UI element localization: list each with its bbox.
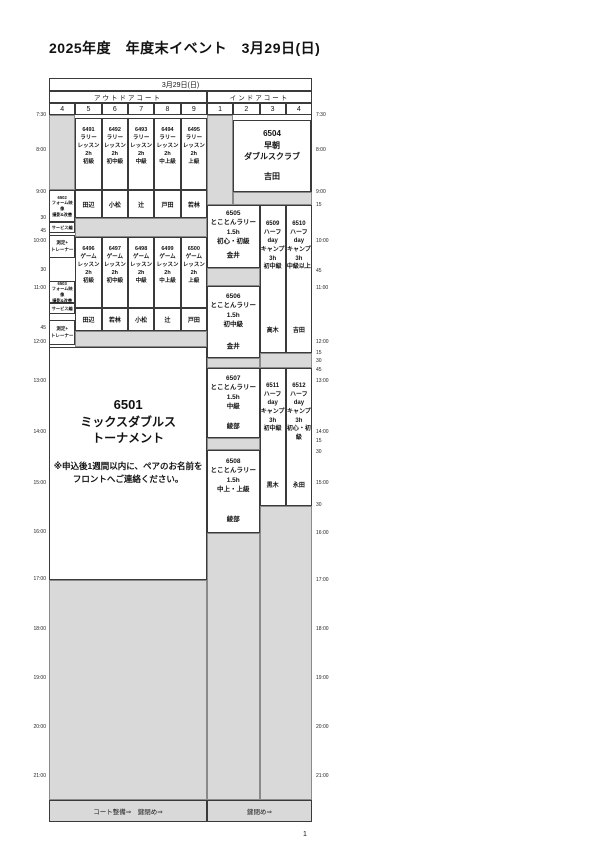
- time-label-left: 19:00: [24, 675, 46, 681]
- event-text: 6505とことんラリー1.5h初心・初級: [211, 209, 257, 247]
- event-text-line: サービス編: [52, 225, 73, 231]
- closed-area: [260, 353, 313, 368]
- instructor-cell-6493: 辻: [128, 190, 154, 218]
- event-text-line: ハーフ: [261, 391, 285, 400]
- event-text-line: 2h: [191, 270, 197, 278]
- event-text-line: 6510: [287, 220, 311, 229]
- closed-area: [75, 331, 207, 347]
- event-text-line: キャンプ: [261, 408, 285, 417]
- note-line: ※申込後1週間以内に、ペアのお名前を: [54, 460, 203, 473]
- closed-area: [233, 192, 312, 205]
- time-label-right: 15: [316, 350, 322, 356]
- closed-area: [260, 506, 313, 800]
- event-text-line: 6509: [261, 220, 285, 229]
- event-block-6509: 6509ハーフdayキャンプ3h初中級高木: [260, 205, 286, 353]
- time-label-right: 14:00: [316, 429, 329, 435]
- event-block-6493: 6493ラリーレッスン2h中級: [128, 118, 154, 190]
- event-text-line: 6494: [161, 127, 173, 135]
- event-text: 6508とことんラリー1.5h中上・上級: [211, 457, 257, 495]
- instructor-cell-6498: 小松: [128, 308, 154, 331]
- closed-area: [49, 580, 207, 800]
- footer-outdoor: コート整備⇒ 鍵閉め⇒: [49, 800, 207, 822]
- time-label-right: 20:00: [316, 724, 329, 730]
- event-block-6508: 6508とことんラリー1.5h中上・上級綾部: [207, 450, 260, 533]
- time-label-right: 17:00: [316, 577, 329, 583]
- instructor-name: 永田: [293, 482, 305, 491]
- event-text-line: 初中級: [261, 263, 285, 272]
- instructor-name: 黒木: [267, 482, 279, 491]
- time-label-left: 18:00: [24, 626, 46, 632]
- event-text: 6512ハーフdayキャンプ3h初心・初級: [287, 382, 311, 443]
- event-text-line: 初級: [83, 159, 94, 167]
- event-text-line: 中級: [136, 159, 147, 167]
- event-text-line: ハーフ: [287, 229, 311, 238]
- event-text-line: ダブルスクラブ: [244, 151, 300, 163]
- event-block-c4f: 測定+トレーナー: [49, 320, 75, 345]
- event-block-6511: 6511ハーフdayキャンプ3h初中級黒木: [260, 368, 286, 506]
- event-text-line: 3h: [287, 417, 311, 426]
- event-text-line: 2h: [85, 151, 91, 159]
- instructor-name: 金井: [227, 342, 240, 351]
- event-text-line: 6500: [188, 246, 200, 254]
- event-text-line: 6501: [80, 396, 176, 414]
- event-block-6491: 6491ラリーレッスン2h初級: [75, 118, 101, 190]
- closed-area: [207, 115, 233, 205]
- event-text-line: 2h: [138, 270, 144, 278]
- event-text-line: 1.5h: [211, 228, 257, 237]
- event-block-6512: 6512ハーフdayキャンプ3h初心・初級永田: [286, 368, 312, 506]
- time-label-right: 15:00: [316, 480, 329, 486]
- time-label-left: 13:00: [24, 378, 46, 384]
- time-label-left: 17:00: [24, 576, 46, 582]
- note-line: フロントへご連絡ください。: [54, 473, 203, 486]
- event-text-line: ゲーム: [133, 254, 149, 262]
- event-text-line: day: [261, 237, 285, 246]
- event-text-line: 6491: [82, 127, 94, 135]
- event-text-line: キャンプ: [287, 246, 311, 255]
- instructor-cell-6491: 田辺: [75, 190, 101, 218]
- closed-area: [207, 438, 260, 450]
- event-text-line: レッスン: [104, 143, 126, 151]
- event-text-line: 中級: [136, 278, 147, 286]
- instructor-name: 高木: [267, 327, 279, 336]
- event-text-line: とことんラリー: [211, 301, 257, 310]
- event-text-line: フォーム映像: [50, 286, 74, 297]
- event-block-6499: 6499ゲームレッスン2h中上級: [154, 237, 180, 308]
- time-label-left: 7:30: [24, 112, 46, 118]
- time-label-right: 30: [316, 449, 322, 455]
- event-text-line: 6508: [211, 457, 257, 466]
- court-header-indoor-3: 3: [260, 103, 286, 115]
- event-block-6507: 6507とことんラリー1.5h中級綾部: [207, 368, 260, 438]
- event-text-line: 1.5h: [211, 476, 257, 485]
- court-header-indoor-4: 4: [286, 103, 312, 115]
- event-text-line: サービス編: [52, 306, 73, 312]
- event-text-line: 2h: [164, 151, 170, 159]
- event-text-line: ラリー: [186, 135, 203, 143]
- instructor-name: 吉田: [264, 171, 280, 183]
- event-text-line: 初中級: [107, 159, 124, 167]
- event-text-line: レッスン: [183, 143, 205, 151]
- instructor-name: 綾部: [227, 422, 240, 431]
- event-block-6501: 6501ミックスダブルストーナメント※申込後1週間以内に、ペアのお名前をフロント…: [49, 347, 207, 580]
- event-text-line: 中上級: [159, 159, 176, 167]
- event-text-line: 初級: [83, 278, 94, 286]
- event-text-line: 中上級: [159, 278, 176, 286]
- event-text-line: 早朝: [244, 140, 300, 152]
- time-label-right: 18:00: [316, 626, 329, 632]
- event-text-line: 初中級: [261, 425, 285, 434]
- instructor-name: 綾部: [227, 515, 240, 524]
- event-block-c4c: 測定+トレーナー: [49, 235, 75, 258]
- court-header-indoor-1: 1: [207, 103, 233, 115]
- closed-area: [207, 268, 260, 286]
- event-text-line: ハーフ: [261, 229, 285, 238]
- event-text-line: 2h: [138, 151, 144, 159]
- event-text-line: ミックスダブルス: [80, 414, 176, 430]
- event-block-6506: 6506とことんラリー1.5h初中級金井: [207, 286, 260, 358]
- event-text-line: ゲーム: [159, 254, 175, 262]
- event-text-line: キャンプ: [287, 408, 311, 417]
- tournament-title: 6501ミックスダブルストーナメント: [80, 396, 176, 446]
- event-block-c4e: サービス編: [49, 303, 75, 314]
- court-header-indoor-2: 2: [233, 103, 259, 115]
- closed-area: [207, 533, 260, 800]
- time-label-right: 9:00: [316, 189, 326, 195]
- event-text-line: 6499: [161, 246, 173, 254]
- event-text-line: 6506: [211, 292, 257, 301]
- event-text-line: フォーム映像: [50, 200, 74, 211]
- event-text-line: 初心・初級: [287, 425, 311, 442]
- event-text-line: 撮影&改善: [52, 212, 72, 218]
- event-text-line: ラリー: [159, 135, 176, 143]
- event-text: 6507とことんラリー1.5h中級: [211, 374, 257, 412]
- event-text-line: キャンプ: [261, 246, 285, 255]
- time-label-left: 21:00: [24, 773, 46, 779]
- instructor-cell-6500: 戸田: [181, 308, 207, 331]
- event-block-6505: 6505とことんラリー1.5h初心・初級金井: [207, 205, 260, 268]
- event-text-line: 中級: [211, 402, 257, 411]
- time-label-right: 21:00: [316, 773, 329, 779]
- event-text-line: 6498: [135, 246, 147, 254]
- event-text: 6510ハーフdayキャンプ3h中級以上: [287, 220, 311, 272]
- time-label-left: 12:00: [24, 339, 46, 345]
- event-text-line: とことんラリー: [211, 218, 257, 227]
- time-label-right: 30: [316, 358, 322, 364]
- event-text-line: 6505: [211, 209, 257, 218]
- event-block-6500: 6500ゲームレッスン2h上級: [181, 237, 207, 308]
- time-label-left: 45: [24, 325, 46, 331]
- instructor-cell-6492: 小松: [102, 190, 128, 218]
- instructor-name: 吉田: [293, 327, 305, 336]
- outdoor-section-label: アウトドアコート: [49, 91, 207, 103]
- time-label-right: 45: [316, 367, 322, 373]
- time-label-right: 11:00: [316, 285, 328, 291]
- event-text: 6506とことんラリー1.5h初中級: [211, 292, 257, 330]
- closed-area: [49, 115, 75, 190]
- court-header-outdoor-5: 5: [75, 103, 101, 115]
- time-label-left: 10:00: [24, 238, 46, 244]
- indoor-section-label: インドアコート: [207, 91, 312, 103]
- event-block-6492: 6492ラリーレッスン2h初中級: [102, 118, 128, 190]
- instructor-cell-6499: 辻: [154, 308, 180, 331]
- event-text-line: 2h: [112, 151, 118, 159]
- time-label-left: 20:00: [24, 724, 46, 730]
- event-text-line: 中級以上: [287, 263, 311, 272]
- closed-area: [75, 218, 207, 237]
- court-header-outdoor-9: 9: [181, 103, 207, 115]
- time-label-right: 13:00: [316, 378, 329, 384]
- time-label-right: 15: [316, 202, 322, 208]
- time-label-right: 7:30: [316, 112, 326, 118]
- event-text-line: トーナメント: [80, 430, 176, 446]
- event-text-line: 初中級: [211, 320, 257, 329]
- time-label-right: 16:00: [316, 530, 329, 536]
- instructor-cell-6497: 若林: [102, 308, 128, 331]
- time-label-right: 45: [316, 268, 322, 274]
- event-text-line: day: [287, 237, 311, 246]
- event-text-line: 2h: [112, 270, 118, 278]
- event-block-6498: 6498ゲームレッスン2h中級: [128, 237, 154, 308]
- event-text-line: 6511: [261, 382, 285, 391]
- event-block-6497: 6497ゲームレッスン2h初中級: [102, 237, 128, 308]
- event-text-line: ハーフ: [287, 391, 311, 400]
- event-text-line: ラリー: [107, 135, 124, 143]
- event-text-line: とことんラリー: [211, 466, 257, 475]
- event-text-line: レッスン: [130, 143, 152, 151]
- event-text-line: 1.5h: [211, 393, 257, 402]
- event-text-line: 6504: [244, 128, 300, 140]
- event-text-line: 6493: [135, 127, 147, 135]
- event-text-line: 6507: [211, 374, 257, 383]
- event-block-c4b: サービス編: [49, 222, 75, 233]
- time-label-right: 8:00: [316, 147, 326, 153]
- event-text-line: 6497: [109, 246, 121, 254]
- schedule-page: 2025年度 年度末イベント 3月29日(日) 3月29日(日) アウトドアコー…: [0, 0, 600, 849]
- time-label-right: 12:00: [316, 339, 329, 345]
- event-text-line: day: [261, 399, 285, 408]
- time-label-right: 10:00: [316, 238, 329, 244]
- footer-indoor: 鍵閉め⇒: [207, 800, 312, 822]
- event-text-line: 初心・初級: [211, 237, 257, 246]
- event-text-line: ゲーム: [80, 254, 96, 262]
- court-header-outdoor-7: 7: [128, 103, 154, 115]
- instructor-cell-6495: 若林: [181, 190, 207, 218]
- event-block-6496: 6496ゲームレッスン2h初級: [75, 237, 101, 308]
- event-text-line: ゲーム: [107, 254, 123, 262]
- page-number: 1: [303, 831, 307, 838]
- instructor-name: 金井: [227, 251, 240, 260]
- event-block-6494: 6494ラリーレッスン2h中上級: [154, 118, 180, 190]
- event-text-line: 3h: [287, 255, 311, 264]
- event-text-line: レッスン: [130, 262, 152, 270]
- event-text-line: 2h: [85, 270, 91, 278]
- event-text-line: 上級: [188, 159, 199, 167]
- event-text-line: レッスン: [104, 262, 126, 270]
- time-label-left: 15:00: [24, 480, 46, 486]
- event-text-line: day: [287, 399, 311, 408]
- event-text-line: レッスン: [156, 143, 178, 151]
- event-text: 6509ハーフdayキャンプ3h初中級: [261, 220, 285, 272]
- event-block-6504: 6504早朝ダブルスクラブ吉田: [233, 120, 311, 192]
- event-block-6495: 6495ラリーレッスン2h上級: [181, 118, 207, 190]
- event-text-line: ゲーム: [186, 254, 202, 262]
- event-text-line: 6492: [109, 127, 121, 135]
- event-text-line: トレーナー: [51, 247, 74, 253]
- page-title: 2025年度 年度末イベント 3月29日(日): [49, 38, 320, 58]
- time-label-right: 19:00: [316, 675, 329, 681]
- time-label-left: 14:00: [24, 429, 46, 435]
- time-label-right: 30: [316, 502, 322, 508]
- instructor-cell-6494: 戸田: [154, 190, 180, 218]
- time-label-left: 30: [24, 215, 46, 221]
- event-text-line: レッスン: [156, 262, 178, 270]
- time-label-left: 30: [24, 267, 46, 273]
- event-text-line: レッスン: [183, 262, 205, 270]
- event-text-line: レッスン: [77, 143, 99, 151]
- event-text-line: 6496: [82, 246, 94, 254]
- time-label-left: 9:00: [24, 189, 46, 195]
- event-block-c4d: 6503フォーム映像撮影&改善: [49, 281, 75, 303]
- event-text-line: 2h: [191, 151, 197, 159]
- event-text-line: レッスン: [77, 262, 99, 270]
- event-text: 6504早朝ダブルスクラブ: [244, 128, 300, 163]
- time-label-left: 8:00: [24, 147, 46, 153]
- time-label-left: 16:00: [24, 529, 46, 535]
- instructor-cell-6496: 田辺: [75, 308, 101, 331]
- court-header-outdoor-4: 4: [49, 103, 75, 115]
- date-header: 3月29日(日): [49, 78, 312, 91]
- event-text: 6511ハーフdayキャンプ3h初中級: [261, 382, 285, 434]
- event-text-line: 初中級: [107, 278, 124, 286]
- event-text-line: 上級: [188, 278, 199, 286]
- event-text-line: ラリー: [133, 135, 150, 143]
- court-header-outdoor-6: 6: [102, 103, 128, 115]
- event-text-line: 6512: [287, 382, 311, 391]
- event-text-line: 6495: [188, 127, 200, 135]
- event-text-line: ラリー: [80, 135, 97, 143]
- closed-area: [207, 358, 260, 368]
- event-text-line: トレーナー: [51, 333, 74, 339]
- event-block-6510: 6510ハーフdayキャンプ3h中級以上吉田: [286, 205, 312, 353]
- event-text-line: とことんラリー: [211, 383, 257, 392]
- event-text-line: 2h: [164, 270, 170, 278]
- event-text-line: 1.5h: [211, 311, 257, 320]
- tournament-note: ※申込後1週間以内に、ペアのお名前をフロントへご連絡ください。: [54, 460, 203, 486]
- time-label-left: 45: [24, 228, 46, 234]
- court-header-outdoor-8: 8: [154, 103, 180, 115]
- time-label-right: 15: [316, 438, 322, 444]
- event-text-line: 3h: [261, 417, 285, 426]
- event-text-line: 中上・上級: [211, 485, 257, 494]
- event-block-c4a: 6502フォーム映像撮影&改善: [49, 190, 75, 222]
- time-label-left: 11:00: [24, 285, 46, 291]
- event-text-line: 3h: [261, 255, 285, 264]
